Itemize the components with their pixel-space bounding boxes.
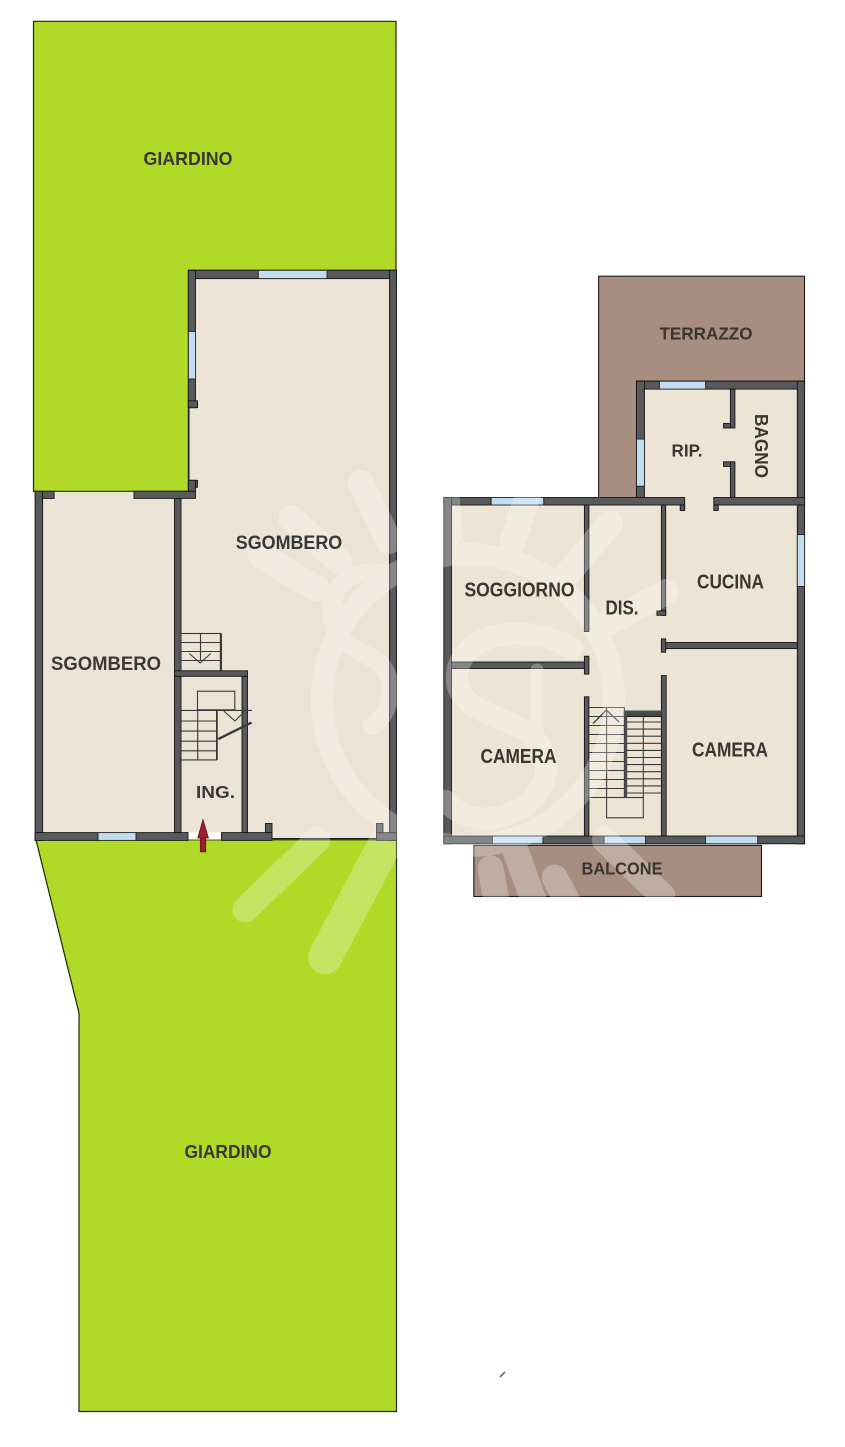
svg-text:CAMERA: CAMERA [692, 739, 768, 761]
svg-text:RIP.: RIP. [672, 441, 703, 461]
svg-text:DIS.: DIS. [606, 597, 639, 619]
svg-text:GIARDINO: GIARDINO [144, 149, 233, 169]
svg-text:BAGNO: BAGNO [751, 414, 771, 478]
svg-text:SGOMBERO: SGOMBERO [236, 532, 343, 554]
svg-text:SOGGIORNO: SOGGIORNO [465, 579, 575, 601]
svg-text:TERRAZZO: TERRAZZO [660, 324, 753, 344]
svg-text:GIARDINO: GIARDINO [185, 1142, 272, 1162]
svg-text:CAMERA: CAMERA [481, 746, 557, 768]
svg-text:ING.: ING. [196, 782, 235, 802]
svg-text:BALCONE: BALCONE [582, 859, 663, 879]
svg-text:SGOMBERO: SGOMBERO [51, 653, 161, 675]
svg-text:CUCINA: CUCINA [697, 572, 764, 594]
